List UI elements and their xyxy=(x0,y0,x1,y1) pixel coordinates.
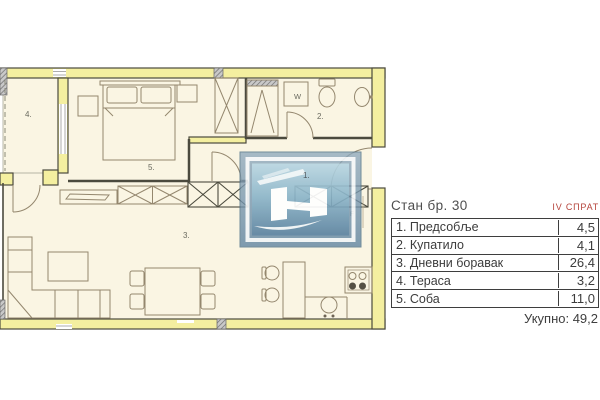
info-panel: Стан бр. 30 IV СПРАТ 1. Предсобље 4,5 2.… xyxy=(391,197,599,326)
room-area: 3,2 xyxy=(558,273,598,288)
floor-tag: IV СПРАТ xyxy=(552,202,599,213)
area-table-row: 3. Дневни боравак 26,4 xyxy=(392,254,598,272)
total-area: Укупно: 49,2 xyxy=(391,311,599,326)
closet-block xyxy=(188,182,248,207)
area-table: 1. Предсобље 4,5 2. Купатило 4,1 3. Днев… xyxy=(391,218,599,308)
area-table-row: 1. Предсобље 4,5 xyxy=(392,219,598,236)
washer-label: W xyxy=(294,92,302,101)
room-label-hallway: 1. xyxy=(303,171,310,180)
room-label-living: 3. xyxy=(183,231,190,240)
logo-watermark: 1. xyxy=(240,152,361,247)
apartment-title: Стан бр. 30 xyxy=(391,198,468,213)
panel-header: Стан бр. 30 IV СПРАТ xyxy=(391,197,599,213)
room-name: 5. Соба xyxy=(392,292,558,306)
room-label-terrace: 4. xyxy=(25,110,32,119)
area-table-row: 4. Тераса 3,2 xyxy=(392,271,598,289)
room-area: 4,5 xyxy=(558,220,598,235)
room-area: 11,0 xyxy=(558,291,598,306)
room-name: 2. Купатило xyxy=(392,238,558,252)
room-name: 4. Тераса xyxy=(392,274,558,288)
area-table-row: 5. Соба 11,0 xyxy=(392,289,598,307)
room-area: 26,4 xyxy=(558,255,598,270)
room-label-bedroom: 5. xyxy=(148,163,155,172)
floor-plan-page: 4. 5. 2. 3. W F 1. Стан бр. 30 xyxy=(0,0,600,400)
room-area: 4,1 xyxy=(558,238,598,253)
area-table-row: 2. Купатило 4,1 xyxy=(392,236,598,254)
room-name: 1. Предсобље xyxy=(392,220,558,234)
room-name: 3. Дневни боравак xyxy=(392,256,558,270)
room-label-bathroom: 2. xyxy=(317,112,324,121)
